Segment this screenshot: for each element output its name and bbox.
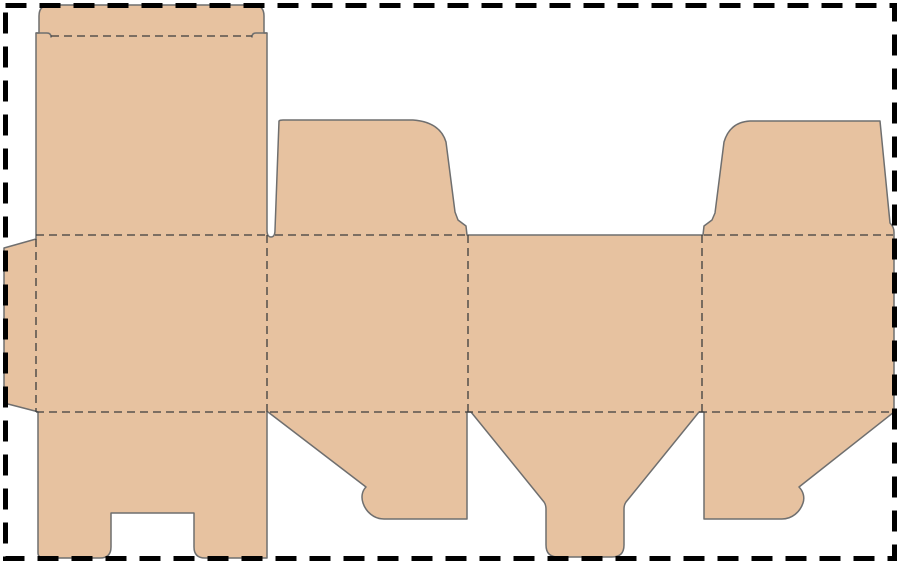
box-dieline-diagram [0,0,900,564]
dieline-page [0,0,900,564]
